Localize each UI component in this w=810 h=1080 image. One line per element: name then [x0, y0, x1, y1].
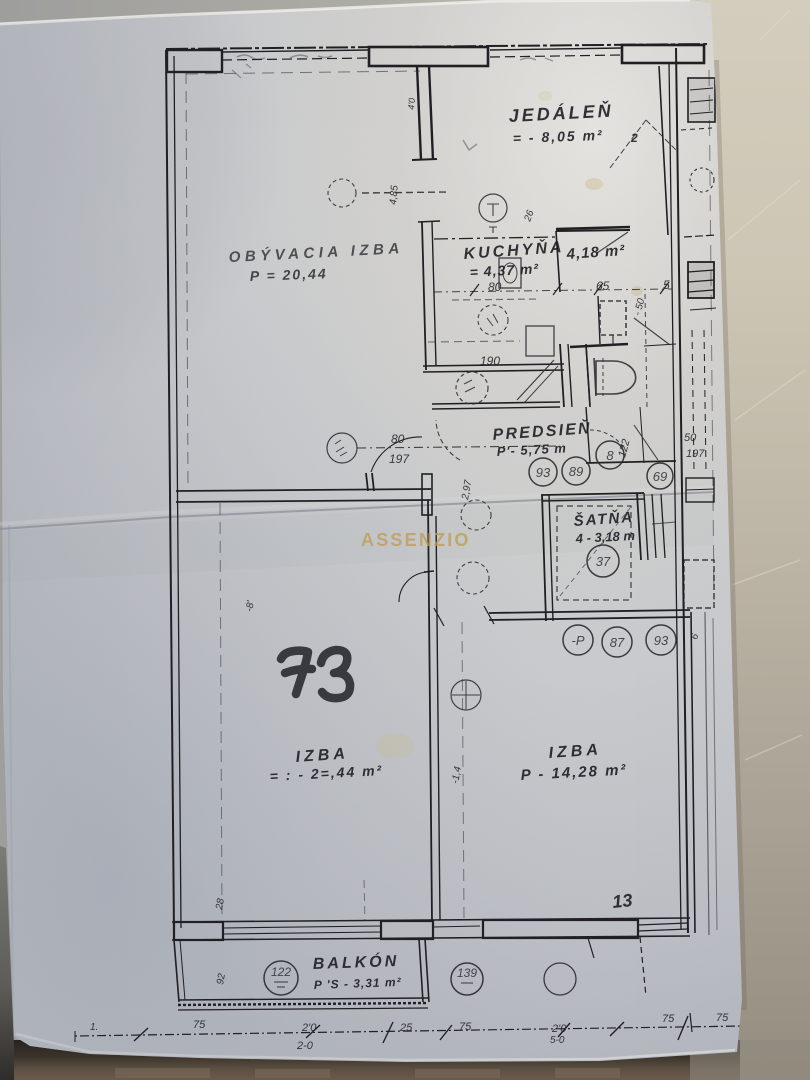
svg-text:4,85: 4,85: [388, 184, 401, 205]
svg-text:5: 5: [663, 278, 670, 292]
svg-text:2: 2: [630, 131, 638, 145]
svg-text:139: 139: [457, 966, 477, 980]
svg-text:28: 28: [214, 897, 227, 911]
svg-text:75: 75: [459, 1021, 472, 1033]
svg-text:P = 20,44: P = 20,44: [250, 265, 328, 284]
svg-text:87: 87: [610, 635, 625, 650]
svg-text:4 - 3,18 m: 4 - 3,18 m: [574, 528, 635, 546]
svg-text:4'0: 4'0: [406, 98, 417, 111]
svg-text:69: 69: [653, 469, 667, 484]
svg-text:93: 93: [536, 465, 551, 480]
svg-text:2'0: 2'0: [301, 1022, 317, 1034]
svg-text:ASSENZIO: ASSENZIO: [361, 530, 471, 550]
svg-text:65: 65: [596, 279, 610, 293]
svg-text:75: 75: [193, 1019, 206, 1031]
svg-text:80: 80: [488, 280, 502, 294]
svg-text:-P: -P: [572, 633, 585, 648]
svg-text:5-0: 5-0: [550, 1035, 565, 1046]
svg-text:197: 197: [686, 448, 705, 460]
svg-text:37: 37: [596, 554, 611, 569]
svg-text:= - 8,05 m²: = - 8,05 m²: [513, 127, 604, 146]
svg-text:122: 122: [271, 965, 291, 979]
svg-text:93: 93: [654, 633, 669, 648]
svg-text:197: 197: [389, 452, 410, 466]
svg-text:75: 75: [662, 1013, 675, 1025]
svg-text:1.: 1.: [90, 1022, 98, 1033]
svg-text:190: 190: [480, 354, 500, 368]
svg-text:50: 50: [684, 432, 697, 444]
svg-text:75: 75: [716, 1012, 729, 1024]
svg-text:80: 80: [391, 432, 405, 446]
svg-text:13: 13: [611, 890, 633, 912]
svg-text:2-0: 2-0: [296, 1040, 314, 1052]
svg-text:89: 89: [569, 464, 583, 479]
svg-text:8: 8: [606, 448, 614, 463]
svg-text:25: 25: [399, 1022, 413, 1034]
svg-text:2'0: 2'0: [551, 1023, 567, 1035]
